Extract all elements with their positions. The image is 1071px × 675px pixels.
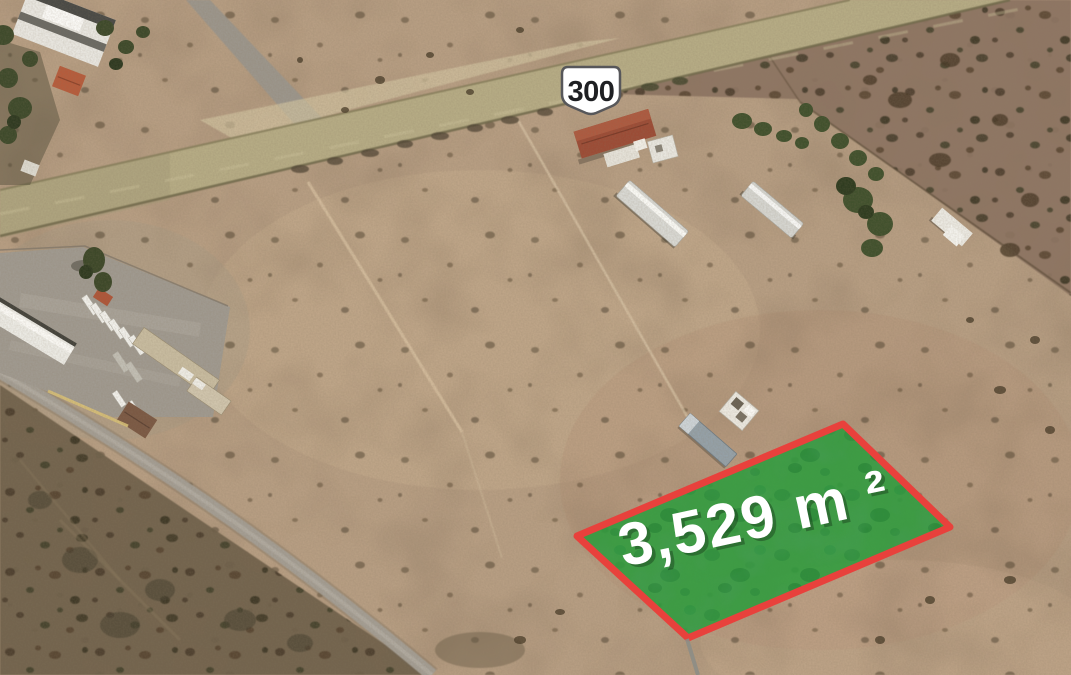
- satellite-grain: [0, 0, 1071, 675]
- satellite-map: 3,529 m ² 3,529 m ² 300: [0, 0, 1071, 675]
- shield-number: 300: [568, 76, 615, 108]
- highway-shield: 300: [562, 67, 620, 114]
